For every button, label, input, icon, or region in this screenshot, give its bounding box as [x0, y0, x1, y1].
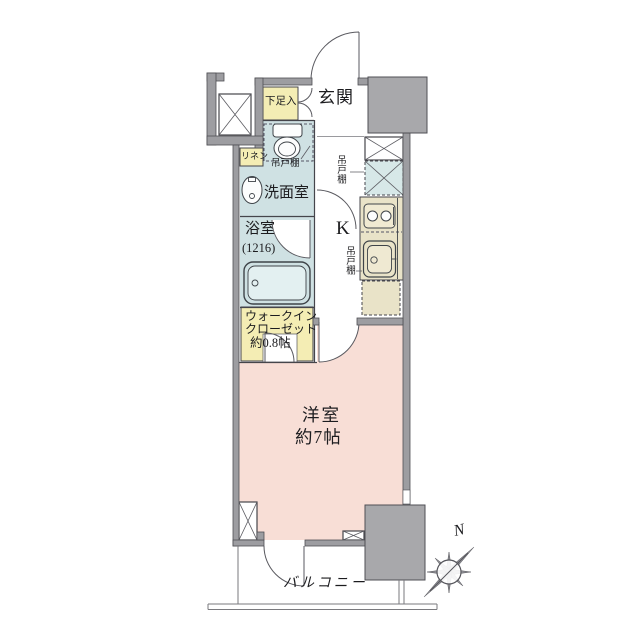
closet-size-label: 約0.8帖 — [250, 337, 291, 350]
wall-below-kitchen — [357, 318, 403, 325]
washbasin-icon — [242, 177, 262, 204]
compass-icon — [424, 547, 474, 597]
washroom-label: 洗面室 — [264, 186, 309, 202]
closet-label-line2: クローゼット — [245, 323, 317, 336]
wall-shaft-bottom — [207, 136, 263, 145]
kitchen-label: K — [336, 219, 350, 239]
pillar-top-right — [368, 77, 427, 133]
wall-window-notch — [403, 490, 410, 504]
wall-bottom-left — [233, 540, 264, 546]
floor-plan: 玄関 下足入 リネン 吊戸棚 吊戸棚 吊戸棚 洗面室 浴室 (1216) K ウ… — [0, 0, 640, 640]
stove-burner-icon — [381, 211, 391, 221]
bath-size-label: (1216) — [242, 242, 275, 255]
genkan-label: 玄関 — [318, 89, 354, 107]
stove-burner-icon — [368, 211, 378, 221]
shoe-box-door-arcs — [298, 88, 312, 117]
refrigerator-space — [362, 281, 400, 315]
toilet-tank-icon — [273, 124, 302, 137]
balcony-label: バルコニー — [283, 577, 368, 592]
linen-label: リネン — [241, 152, 268, 161]
entry-cupboard-label: 吊戸棚 — [334, 155, 344, 195]
bathtub-inner — [248, 266, 306, 300]
wall-top-left — [255, 78, 312, 85]
kitchen-cupboard-label: 吊戸棚 — [343, 246, 353, 286]
toilet-cupboard-label: 吊戸棚 — [271, 160, 300, 170]
bath-label: 浴室 — [245, 222, 275, 238]
wall-bottom-right — [305, 540, 365, 546]
western-room-size-label: 約7帖 — [295, 428, 342, 446]
entrance-door-arc — [311, 32, 359, 80]
wall-left-main — [233, 145, 239, 546]
wall-top-right — [358, 78, 368, 85]
shoe-box-label: 下足入 — [265, 96, 297, 107]
closet-label-line1: ウォークイン — [245, 310, 317, 323]
wall-shaft-left — [207, 73, 216, 145]
wall-right-main — [403, 133, 410, 505]
western-room-label: 洋室 — [302, 406, 341, 424]
pillar-bottom-right — [365, 505, 425, 580]
wall-balcony-door-jamb — [257, 532, 264, 540]
